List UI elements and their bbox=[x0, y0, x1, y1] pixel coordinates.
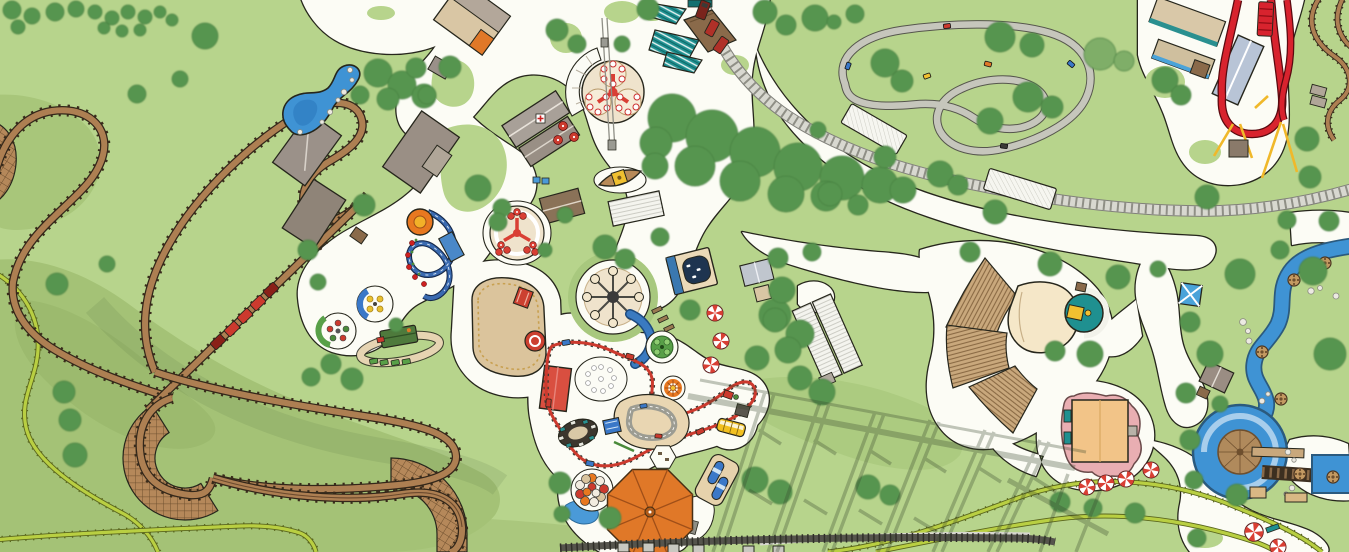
first-aid-icon bbox=[536, 114, 545, 123]
coaster-train bbox=[1257, 2, 1274, 37]
park-map[interactable]: Illustrated amusement park map bbox=[0, 0, 1349, 552]
canopy-ride-a[interactable] bbox=[357, 286, 393, 322]
play-spinner bbox=[525, 331, 545, 351]
teacup-ride[interactable] bbox=[646, 331, 678, 363]
blue-shade-square bbox=[1179, 283, 1203, 307]
picnic-table-plaza bbox=[575, 357, 627, 401]
canopy-ride-b[interactable] bbox=[318, 313, 356, 349]
sand-playground[interactable] bbox=[472, 278, 546, 377]
coaster-kiosk bbox=[1229, 140, 1248, 157]
blue-tent bbox=[603, 417, 622, 434]
loading-dock bbox=[1252, 447, 1304, 458]
peppermint-icon bbox=[707, 305, 723, 321]
park-map-canvas bbox=[0, 0, 1349, 552]
